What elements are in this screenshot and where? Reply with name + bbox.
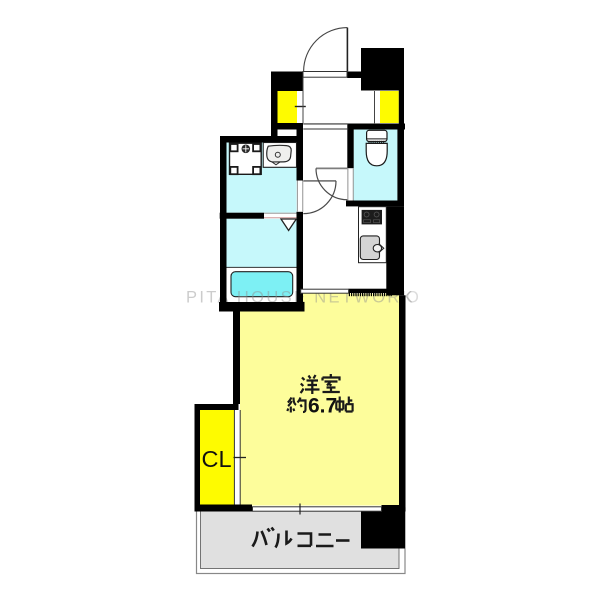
svg-text:6.7: 6.7 xyxy=(308,395,337,418)
svg-text:O: O xyxy=(406,289,419,307)
svg-text:CL: CL xyxy=(202,446,232,472)
